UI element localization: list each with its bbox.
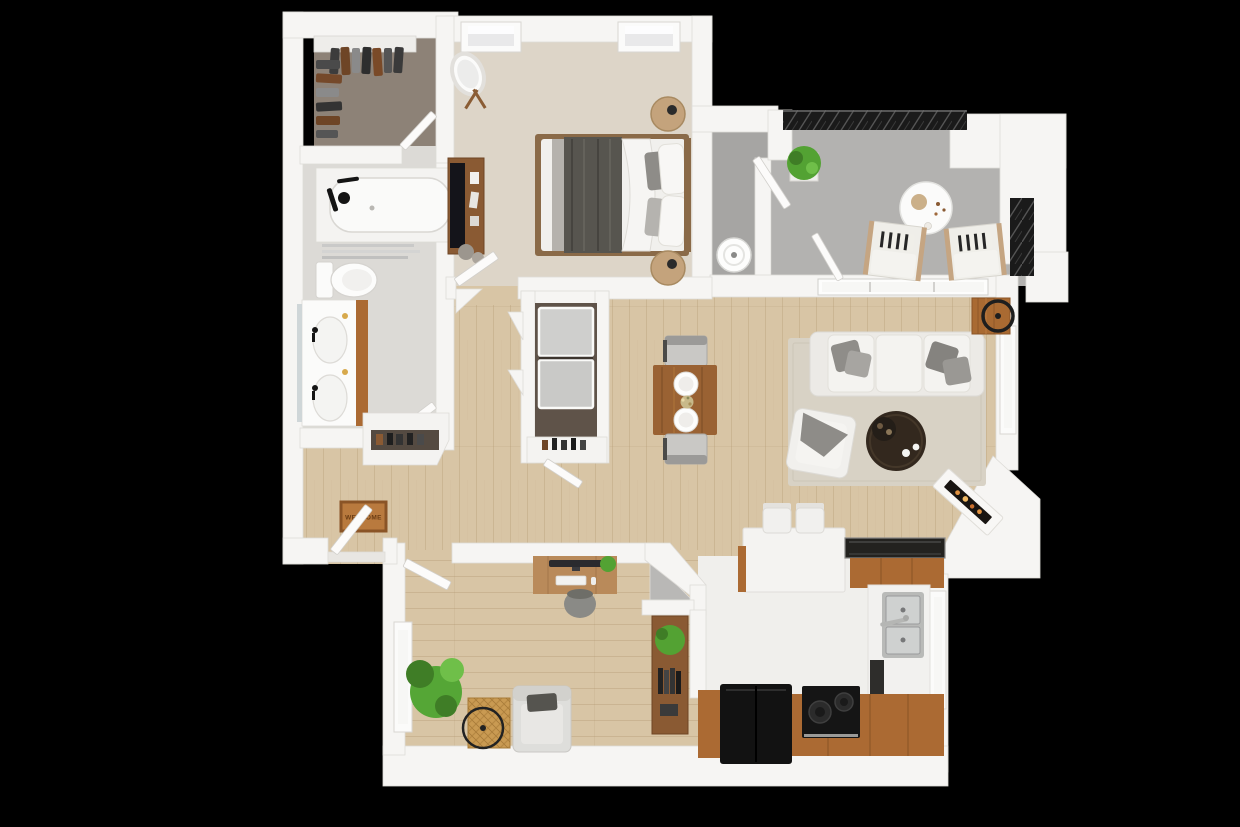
vanity-wood-side — [356, 300, 368, 426]
living-armchair — [785, 407, 857, 479]
wall-bedroom-bottom-a — [446, 277, 456, 299]
wall-bedroom-east — [692, 16, 712, 287]
bedroom-window-1 — [461, 22, 521, 52]
sofa — [810, 332, 984, 396]
shoe-2 — [387, 433, 393, 445]
sink-bottom — [313, 375, 347, 421]
sofa-pillow-right-2 — [942, 356, 972, 386]
sliding-glass-door — [818, 279, 988, 295]
coffee-cup-2 — [913, 444, 920, 451]
faucet-top — [312, 327, 318, 333]
wall-kitchen-west — [690, 610, 706, 698]
kitchen-east-window — [930, 591, 946, 709]
cabinet-left-of-fridge — [698, 690, 720, 758]
dining-chair-top — [663, 336, 707, 366]
nightstand-top — [651, 97, 685, 131]
washer — [539, 308, 593, 356]
desk — [533, 556, 617, 594]
living-east-window — [1000, 326, 1016, 434]
wall-den-closet-bottom — [642, 600, 694, 615]
wall-left-outer — [283, 12, 303, 564]
wall-closet-bedroom — [436, 16, 454, 170]
shoe-1 — [376, 434, 383, 445]
bar-counter-cabinet — [850, 558, 944, 588]
striped-pillow — [955, 231, 993, 253]
tv — [450, 163, 465, 248]
soap-dish-2 — [342, 369, 348, 375]
railing-top-lattice — [783, 110, 967, 130]
soap-dish-1 — [342, 313, 348, 319]
desk-chair — [564, 589, 596, 618]
shoe-3 — [396, 434, 403, 445]
living-side-table — [972, 298, 1013, 334]
toilet — [316, 262, 377, 298]
pillow-white-1 — [658, 143, 687, 195]
dresser-decor-1 — [470, 172, 479, 184]
faucet-bottom — [312, 385, 318, 391]
bar-stool-1 — [763, 503, 791, 533]
dresser-decor-3 — [470, 216, 479, 226]
double-sink — [880, 592, 924, 658]
armchair-pillow — [526, 693, 557, 712]
railing-right-lattice — [1010, 198, 1034, 276]
centerpiece — [681, 396, 694, 409]
bed-sheet-edge — [552, 139, 564, 251]
coffee-table-tray — [872, 417, 896, 441]
round-coffee-table — [866, 411, 926, 471]
dryer — [539, 360, 593, 408]
vanity — [302, 300, 368, 426]
headboard — [684, 138, 691, 252]
shoe-4 — [407, 433, 413, 445]
dining-table — [653, 365, 717, 435]
dining-chair-bottom — [663, 434, 707, 464]
coffee-cup-1 — [902, 449, 910, 457]
sofa-pillow-left-2 — [844, 350, 872, 378]
bathtub — [330, 178, 450, 232]
mouse — [591, 577, 596, 585]
bathroom-mirror — [297, 304, 302, 422]
bar-stool-2 — [796, 503, 824, 533]
desk-plant — [600, 556, 616, 572]
rattan-side-table — [463, 698, 510, 748]
decor-sphere-1 — [458, 244, 474, 260]
shoe-shelf-closet — [363, 413, 449, 465]
kitchen-bottom-run — [698, 684, 944, 764]
laundry-closet — [527, 303, 607, 488]
wall-utility-top — [692, 106, 778, 132]
island-wood-side — [738, 546, 746, 592]
monitor — [549, 560, 603, 567]
pillow-white-2 — [658, 195, 687, 247]
bed — [535, 134, 691, 256]
lounge-chair-left — [863, 221, 927, 282]
bookshelf — [652, 616, 688, 734]
sink-top — [313, 317, 347, 363]
island — [738, 528, 845, 592]
shower-glass-screen — [322, 244, 420, 259]
laundry-storage-shelf — [527, 437, 607, 463]
shelf-decor — [660, 704, 678, 716]
wall-entry-bottom-a — [283, 538, 328, 564]
shoe-5 — [417, 434, 424, 445]
keyboard — [556, 576, 586, 585]
bar-counter — [845, 538, 945, 588]
wall-closet-top — [283, 12, 458, 38]
den-armchair — [513, 686, 571, 752]
bedroom-window-2 — [618, 22, 680, 52]
floor-plan-image: WELCOME — [0, 0, 1240, 827]
range — [802, 686, 860, 738]
wall-closet-bottom — [300, 146, 402, 164]
tub-drain — [370, 206, 375, 211]
lounge-chair-right — [944, 223, 1007, 281]
potted-plant — [787, 146, 821, 181]
nightstand-bottom — [651, 251, 685, 285]
dresser-with-tv — [448, 158, 484, 254]
